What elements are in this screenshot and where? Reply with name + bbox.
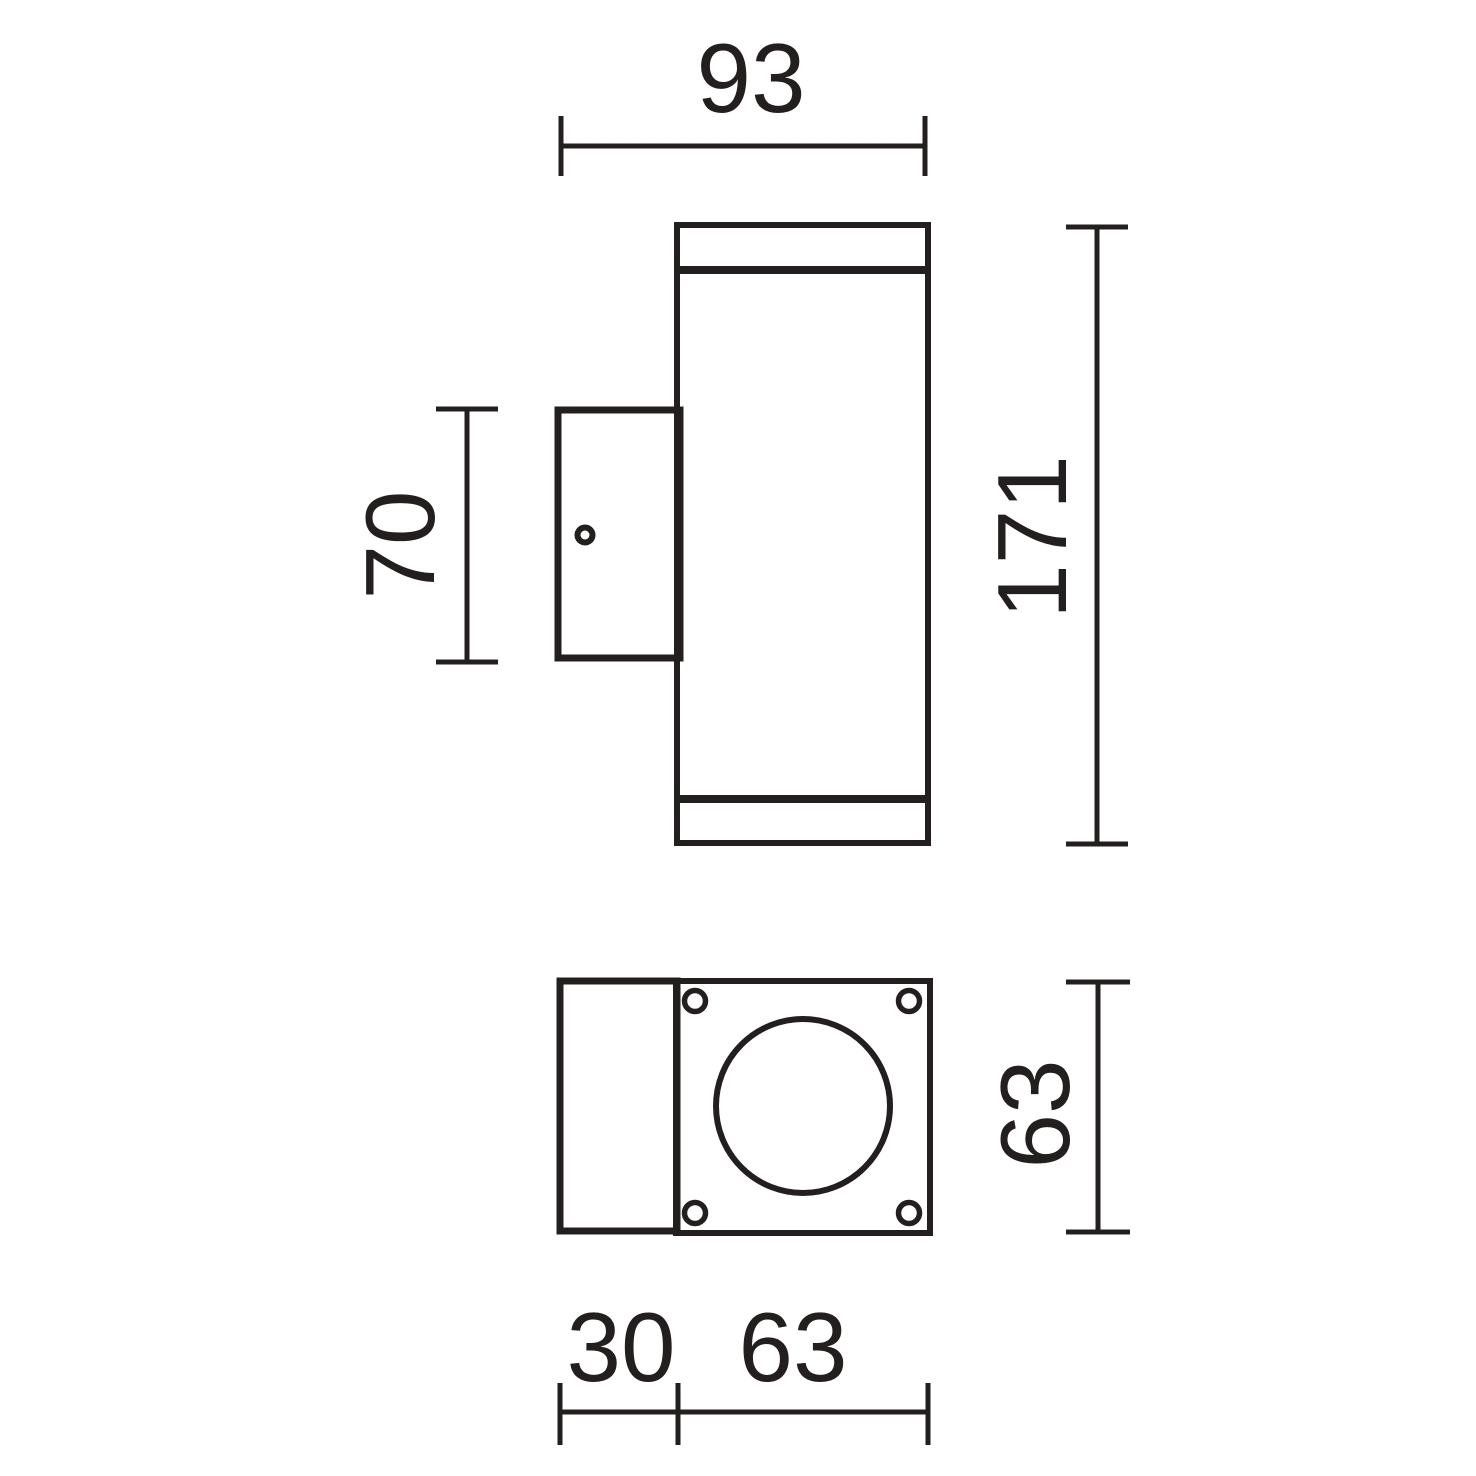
dimension-171-label: 171	[977, 455, 1087, 619]
technical-dimension-drawing: 93 171 70	[0, 0, 1476, 1476]
dimension-70-label: 70	[345, 490, 455, 599]
bottom-view	[560, 981, 930, 1233]
lamp-body-outline	[677, 225, 928, 843]
wall-bracket-bottom-outline	[560, 981, 677, 1231]
dimension-63v-label: 63	[980, 1059, 1090, 1168]
screw-hole-bottom-right	[899, 1203, 920, 1224]
dimension-30-label: 30	[566, 1292, 675, 1402]
dimension-171: 171	[977, 227, 1128, 844]
lamp-glass-circle	[716, 1019, 890, 1193]
dimension-30-63-chain: 30 63	[560, 1292, 928, 1445]
dimension-63-vertical: 63	[980, 982, 1130, 1232]
dimension-63h-label: 63	[738, 1292, 847, 1402]
dimension-93: 93	[561, 23, 925, 176]
screw-hole-top-right	[899, 991, 920, 1012]
screw-hole-top-left	[685, 991, 706, 1012]
dimension-93-label: 93	[696, 23, 805, 133]
side-elevation-view	[558, 225, 930, 843]
screw-hole-bottom-left	[685, 1203, 706, 1224]
drawing-canvas: 93 171 70	[0, 0, 1476, 1476]
dimension-70: 70	[345, 409, 498, 662]
bracket-screw-hole	[578, 528, 593, 543]
